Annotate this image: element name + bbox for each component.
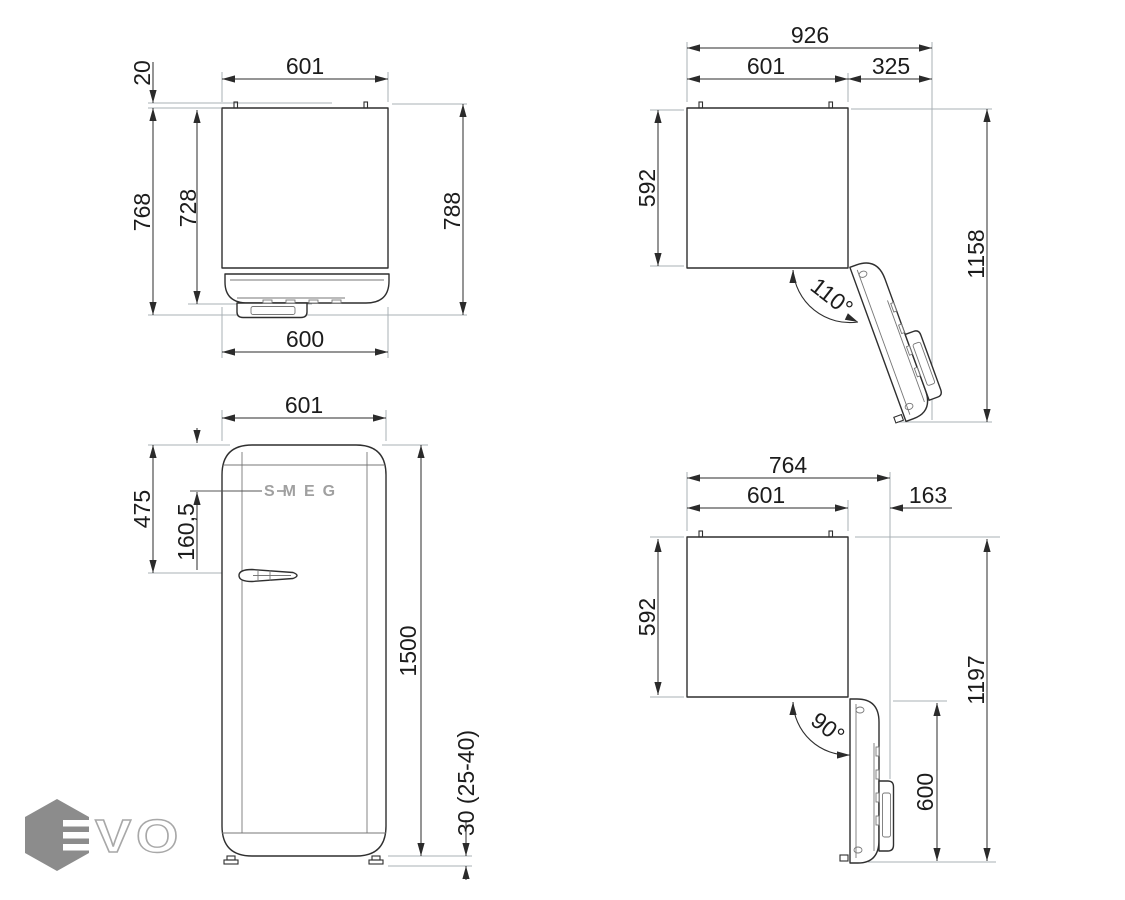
dim-label-height: 1500 xyxy=(395,625,421,676)
dim-label-total-depth: 1158 xyxy=(963,229,989,278)
dim-label-depth-cabinet: 728 xyxy=(175,189,201,227)
dim-label-body-depth: 592 xyxy=(634,169,660,207)
dimension-arrowhead xyxy=(149,90,156,103)
arc-arrowhead xyxy=(789,270,796,283)
dimension-arrowhead xyxy=(890,504,903,511)
fridge-foot xyxy=(227,856,235,860)
dimension-arrowhead xyxy=(375,348,388,355)
dim-label-body-width: 601 xyxy=(747,53,785,79)
dimension-arrowhead xyxy=(417,843,424,856)
dimension-arrowhead xyxy=(983,539,990,552)
dimension-arrowhead xyxy=(687,474,700,481)
dimension-arrowhead xyxy=(375,75,388,82)
fridge-foot xyxy=(372,856,380,860)
view-front: SMEG 601 475 160,5 1500 30 (25-40) xyxy=(129,392,479,880)
technical-drawing: 601 20 768 728 788 600 926 601 xyxy=(0,0,1125,900)
dim-label-logo-from-top: 160,5 xyxy=(173,503,199,561)
dimension-arrowhead xyxy=(687,75,700,82)
dimension-arrowhead xyxy=(919,44,932,51)
dim-label-door-angle: 110° xyxy=(806,272,858,321)
dimension-arrowhead xyxy=(149,302,156,315)
dim-label-total-width: 764 xyxy=(769,452,808,478)
dim-label-total-depth: 1197 xyxy=(963,655,989,704)
dim-label-width-top: 601 xyxy=(286,53,324,79)
dimension-drawing-page: 601 20 768 728 788 600 926 601 xyxy=(0,0,1125,900)
dimension-arrowhead xyxy=(687,504,700,511)
dimension-arrowhead xyxy=(687,44,700,51)
arc-arrowhead xyxy=(837,751,850,758)
dim-label-width-bottom: 600 xyxy=(286,326,324,352)
dimension-arrowhead xyxy=(848,75,861,82)
dimension-arrowhead xyxy=(877,474,890,481)
dimension-arrowhead xyxy=(983,109,990,122)
fridge-foot xyxy=(224,860,238,864)
dimension-arrowhead xyxy=(222,414,235,421)
evo-logo-text: VO xyxy=(95,810,183,862)
evo-e-bar xyxy=(63,820,93,827)
fridge-body-outline xyxy=(687,537,848,697)
dimension-arrowhead xyxy=(933,848,940,861)
dimension-arrowhead xyxy=(462,843,469,856)
view-top-open-90: 764 601 163 592 1197 600 90° xyxy=(634,452,1000,863)
dimension-arrowhead xyxy=(149,108,156,121)
dimension-arrowhead xyxy=(149,445,156,458)
dim-label-rear-clearance: 20 xyxy=(129,60,155,86)
dim-label-depth-total: 788 xyxy=(439,192,465,230)
view-top-closed: 601 20 768 728 788 600 xyxy=(129,53,467,358)
dimension-arrowhead xyxy=(193,110,200,123)
dim-label-door-projection: 163 xyxy=(909,482,947,508)
dimension-arrowhead xyxy=(459,302,466,315)
dim-label-body-width: 601 xyxy=(747,482,785,508)
dim-label-body-depth: 592 xyxy=(634,598,660,636)
dimension-arrowhead xyxy=(417,445,424,458)
dimension-arrowhead xyxy=(373,414,386,421)
fridge-door-open-110 xyxy=(840,252,946,424)
dimension-arrowhead xyxy=(654,110,661,123)
dimension-arrowhead xyxy=(149,560,156,573)
dim-label-door-projection: 325 xyxy=(872,53,910,79)
fridge-body-outline xyxy=(687,108,848,268)
dim-label-door-width: 600 xyxy=(912,773,938,811)
dimension-arrowhead xyxy=(193,430,200,443)
dimension-arrowhead xyxy=(983,409,990,422)
dimension-arrowhead xyxy=(222,348,235,355)
fridge-door-open-90 xyxy=(840,699,894,863)
dimension-arrowhead xyxy=(983,848,990,861)
dimension-arrowhead xyxy=(654,682,661,695)
dimension-arrowhead xyxy=(459,104,466,117)
dim-label-handle-from-top: 475 xyxy=(129,490,155,528)
fridge-foot xyxy=(369,860,383,864)
fridge-body-outline xyxy=(222,108,388,268)
fridge-front-outline xyxy=(222,445,386,856)
dimension-arrowhead xyxy=(193,492,200,505)
dim-label-depth-body: 768 xyxy=(129,193,155,231)
evo-e-bar xyxy=(63,832,93,839)
dimension-arrowhead xyxy=(919,75,932,82)
view-top-open-110: 926 601 325 592 1158 110° xyxy=(634,22,992,425)
dimension-arrowhead xyxy=(654,539,661,552)
arc-arrowhead xyxy=(789,702,796,715)
dimension-arrowhead xyxy=(835,504,848,511)
dim-label-feet-height: 30 (25-40) xyxy=(453,730,479,836)
dimension-arrowhead xyxy=(654,253,661,266)
dimension-arrowhead xyxy=(462,866,469,879)
evo-e-bar xyxy=(63,844,93,851)
evo-watermark: VO xyxy=(25,799,183,871)
dimension-arrowhead xyxy=(835,75,848,82)
dimension-arrowhead xyxy=(193,291,200,304)
dim-label-total-width: 926 xyxy=(791,22,829,48)
dimension-arrowhead xyxy=(933,703,940,716)
dim-label-width: 601 xyxy=(285,392,323,418)
dimension-arrowhead xyxy=(222,75,235,82)
smeg-logo: SMEG xyxy=(264,483,343,500)
